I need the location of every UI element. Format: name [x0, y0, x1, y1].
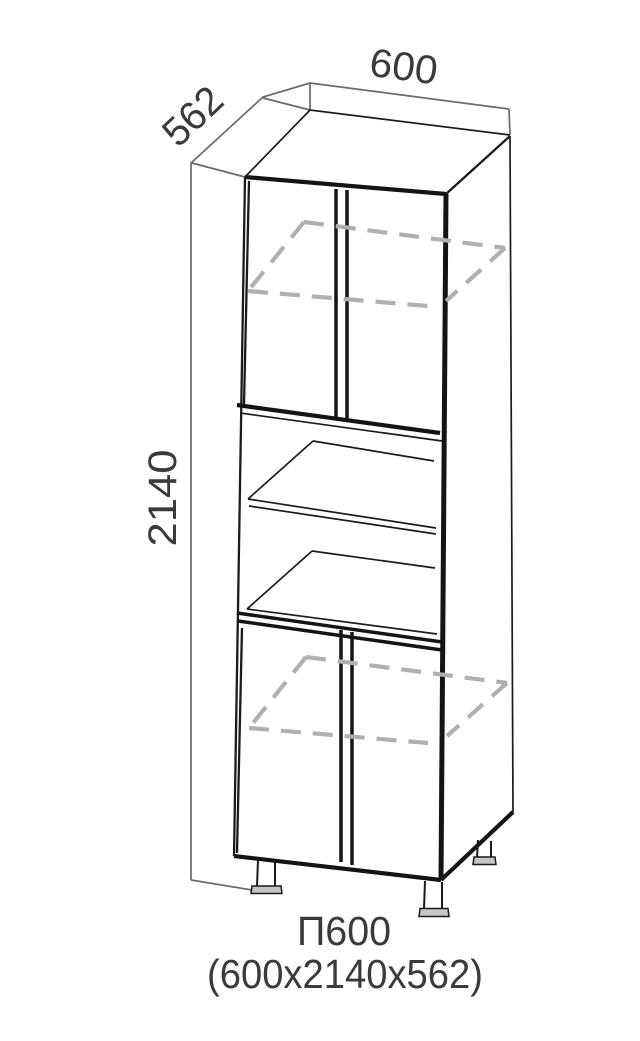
shelf-a-depth-edge [248, 441, 313, 499]
top-face-right-edge [446, 136, 510, 194]
product-size-label: (600x2140x562) [207, 951, 483, 997]
cabinet-legs [251, 840, 496, 917]
top-face-left-back-edges [245, 110, 510, 177]
shelf-b-back-edge [312, 551, 435, 568]
front-right-leg [419, 881, 449, 917]
width-dimension-label: 600 [367, 41, 440, 93]
front-right-leg-foot [419, 909, 449, 917]
shelf-a-back-edge [313, 441, 434, 461]
product-code-label: П600 [297, 908, 391, 954]
cabinet-drawing-page: 600 562 2140 П600 (600x2140x562) [0, 0, 640, 1041]
extension-line-bottom [191, 880, 258, 891]
cabinet-top-face [245, 110, 510, 194]
height-dimension-label: 2140 [141, 450, 185, 547]
shelf-b-depth-edge [247, 551, 312, 609]
shelf-a-front-thickness [249, 506, 436, 534]
upper-doors-bottom-edge [237, 405, 440, 433]
front-left-leg-foot [251, 886, 282, 894]
middle-shelves [240, 413, 442, 634]
upper-doors [237, 181, 440, 433]
hidden-shelf-lower-depth-right [447, 683, 507, 736]
hidden-shelf-lower [249, 657, 507, 743]
front-left-leg [251, 860, 282, 894]
lower-doors [237, 613, 442, 865]
extension-line-top-left [192, 163, 245, 177]
front-bottom-edge [234, 856, 441, 880]
hidden-shelf-upper-depth-left [248, 222, 304, 291]
shelf-a-front-edge [248, 499, 436, 528]
hidden-shelf-upper-depth-right [446, 248, 505, 301]
side-back-edge [510, 136, 513, 812]
front-right-edge [441, 194, 446, 880]
extension-line-back-right [509, 109, 510, 135]
hidden-shelf-lower-back [306, 657, 507, 683]
back-right-leg-foot [473, 857, 496, 865]
hidden-shelf-lower-front [249, 728, 428, 743]
hidden-shelf-upper-front [248, 291, 428, 306]
caption: П600 (600x2140x562) [207, 908, 483, 997]
depth-dimension-label: 562 [154, 78, 232, 155]
hidden-shelf-lower-depth-left [249, 657, 306, 728]
hidden-shelf-upper-back [304, 222, 505, 248]
hidden-shelf-upper [248, 222, 505, 306]
cabinet-technical-drawing: 600 562 2140 П600 (600x2140x562) [0, 0, 640, 1041]
extension-line-depth-back [263, 98, 310, 110]
